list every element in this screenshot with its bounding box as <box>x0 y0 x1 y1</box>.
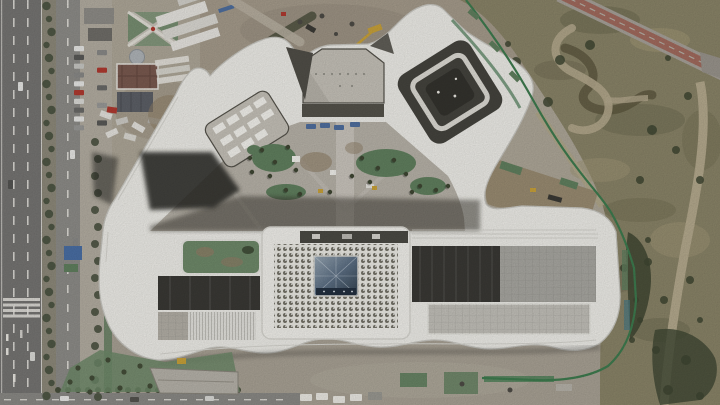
aerial-photo-canvas <box>0 0 720 405</box>
photo-grain <box>0 0 720 405</box>
aerial-photo <box>0 0 720 405</box>
